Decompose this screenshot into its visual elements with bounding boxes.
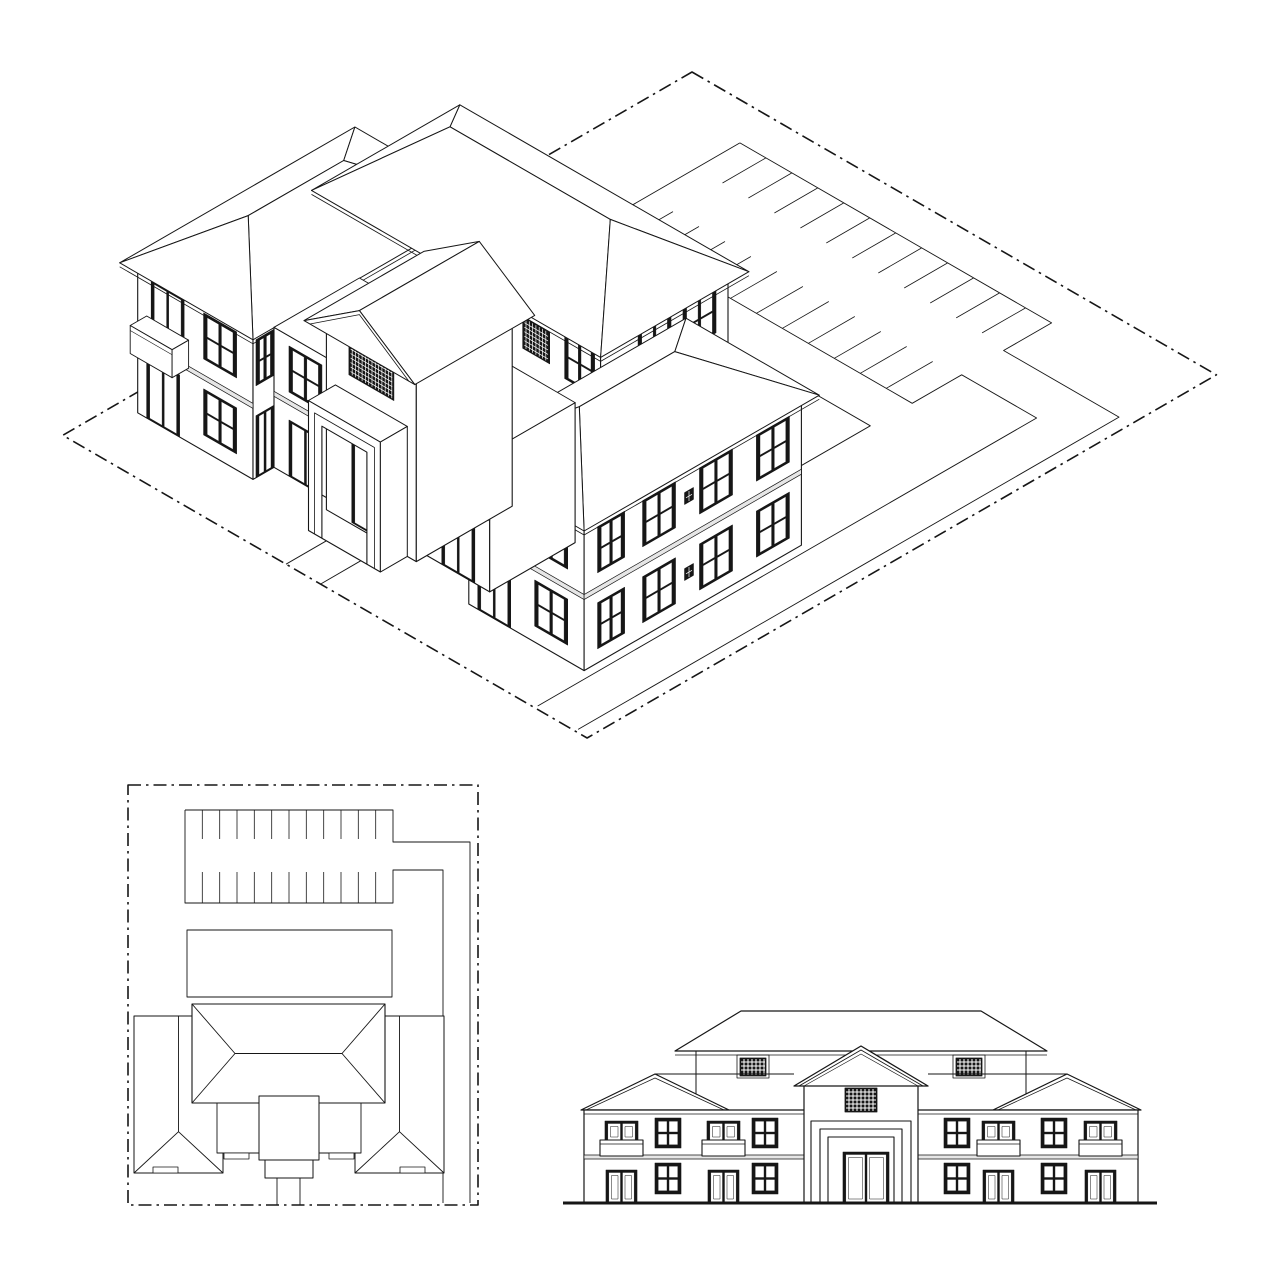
site-plan-view xyxy=(128,785,478,1205)
drawing-canvas xyxy=(0,0,1278,1278)
front-elevation-view xyxy=(563,1011,1157,1203)
isometric-site-view xyxy=(63,72,1217,738)
architectural-drawing-sheet xyxy=(0,0,1278,1278)
